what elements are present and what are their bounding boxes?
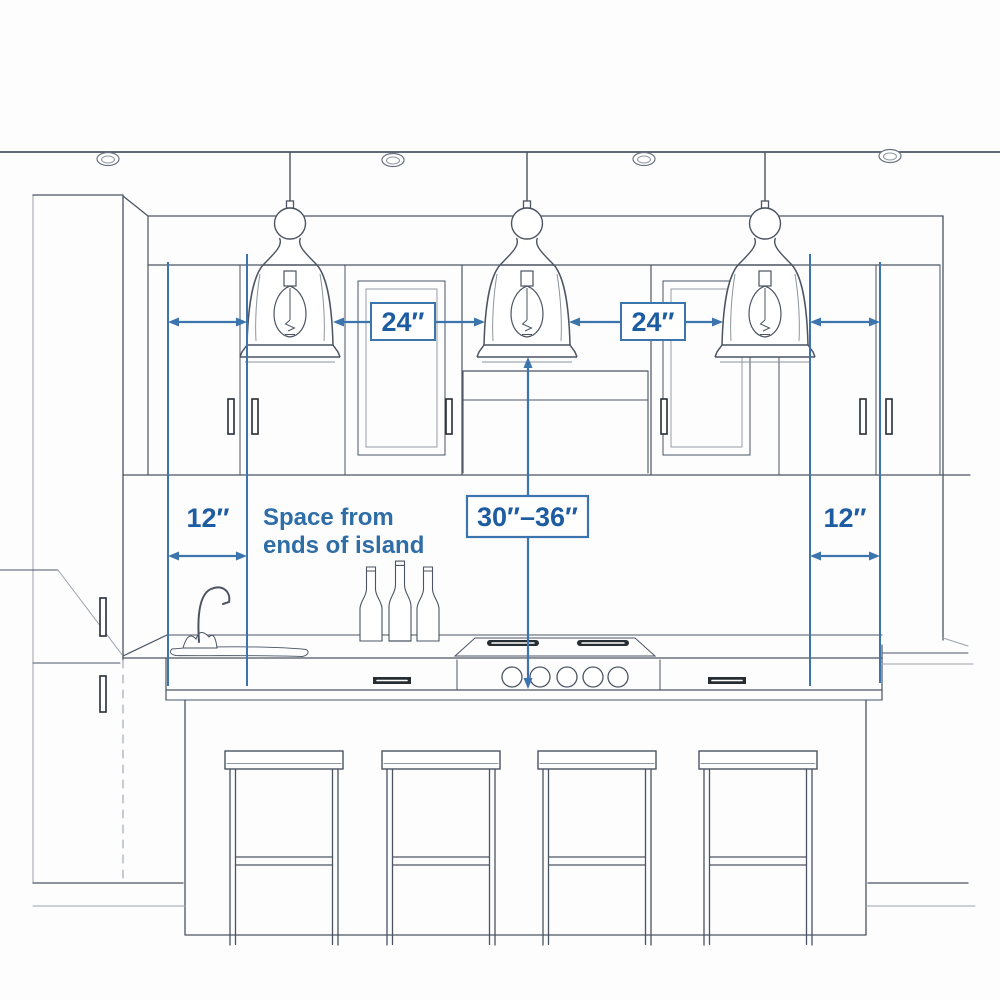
pendant-light-center [477, 152, 577, 362]
pendant-light-right [715, 152, 815, 362]
wine-bottles [360, 561, 439, 641]
kitchen-pendant-spacing-diagram: 24″ 24″ 12″ 12″ Space from ends of islan… [0, 0, 1000, 1000]
left-wall [33, 195, 148, 883]
space-note: Space from ends of island [263, 504, 424, 559]
faucet [183, 587, 229, 648]
range-hood [463, 371, 648, 473]
pendant-light-left [240, 152, 340, 362]
space-note-line2: ends of island [263, 532, 424, 559]
bar-stool [225, 751, 343, 945]
bar-stool [699, 751, 817, 945]
height-dimension: 30″–36″ [467, 357, 588, 689]
lower-left-cabinets [33, 598, 120, 712]
recessed-light-icon [633, 153, 655, 166]
bar-stool [538, 751, 656, 945]
island-end-label-left: 12″ [187, 503, 230, 533]
island-base [185, 700, 866, 935]
cooktop-knob [502, 667, 628, 687]
pendant-spacing-label-right: 24″ [632, 307, 675, 337]
space-note-line1: Space from [263, 504, 394, 531]
height-label: 30″–36″ [477, 502, 578, 532]
bar-stool [382, 751, 500, 945]
countertop [0, 570, 973, 700]
cooktop [455, 638, 655, 687]
island-end-dimension-left: 12″ [168, 503, 247, 561]
recessed-light-icon [382, 154, 404, 167]
floor-lines [33, 883, 975, 906]
island-end-label-right: 12″ [824, 503, 867, 533]
island-end-dimension-right: 12″ [810, 503, 880, 561]
recessed-light-icon [879, 150, 901, 163]
recessed-light-icon [97, 153, 119, 166]
diagram-canvas: 24″ 24″ 12″ 12″ Space from ends of islan… [0, 0, 1000, 1000]
pendant-spacing-label-left: 24″ [382, 307, 425, 337]
cabinet-handle [228, 399, 892, 434]
